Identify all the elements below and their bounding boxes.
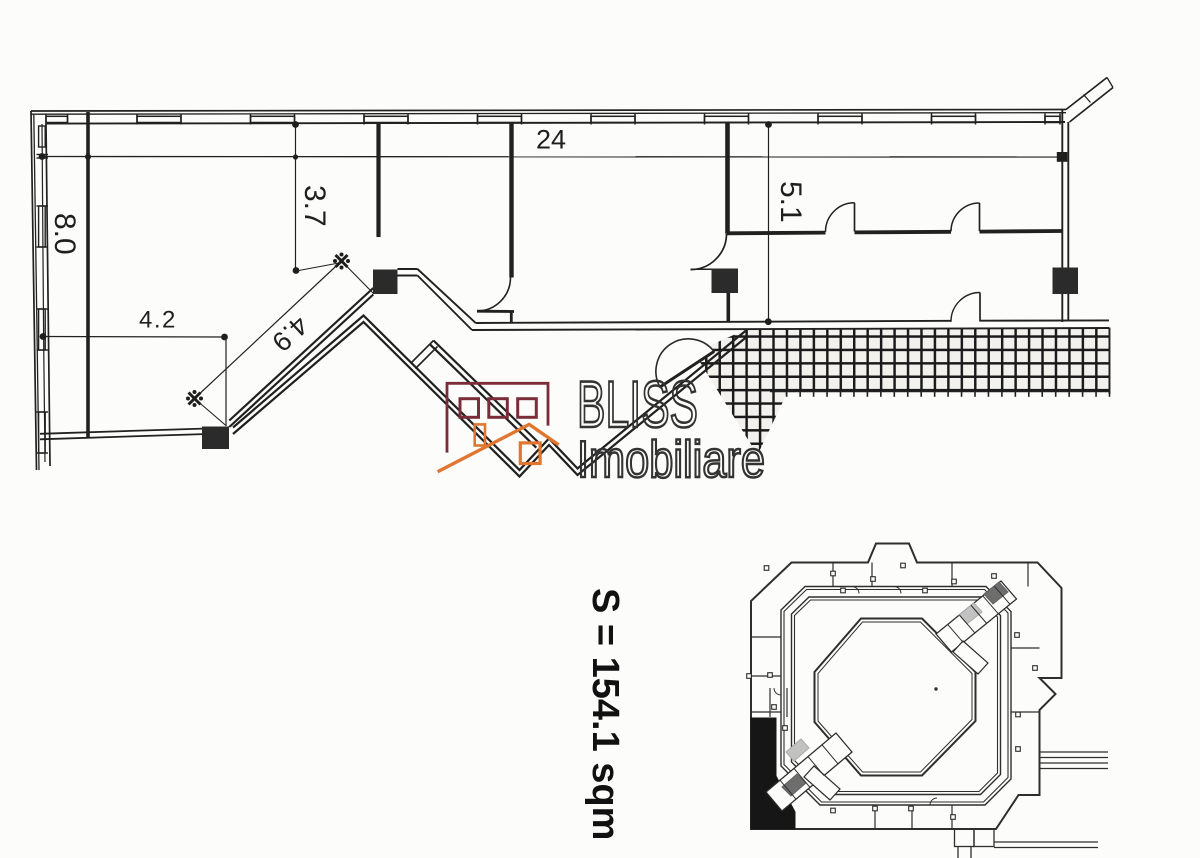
svg-text:S = 154.1 sqm: S = 154.1 sqm <box>584 588 626 840</box>
svg-text:5.1: 5.1 <box>774 181 807 223</box>
svg-text:BLISS: BLISS <box>577 367 698 441</box>
svg-text:Imobiliare: Imobiliare <box>577 431 765 489</box>
svg-text:8.0: 8.0 <box>48 213 81 255</box>
svg-text:3.7: 3.7 <box>298 185 331 227</box>
svg-text:24: 24 <box>536 125 566 155</box>
svg-text:4.2: 4.2 <box>139 307 177 334</box>
